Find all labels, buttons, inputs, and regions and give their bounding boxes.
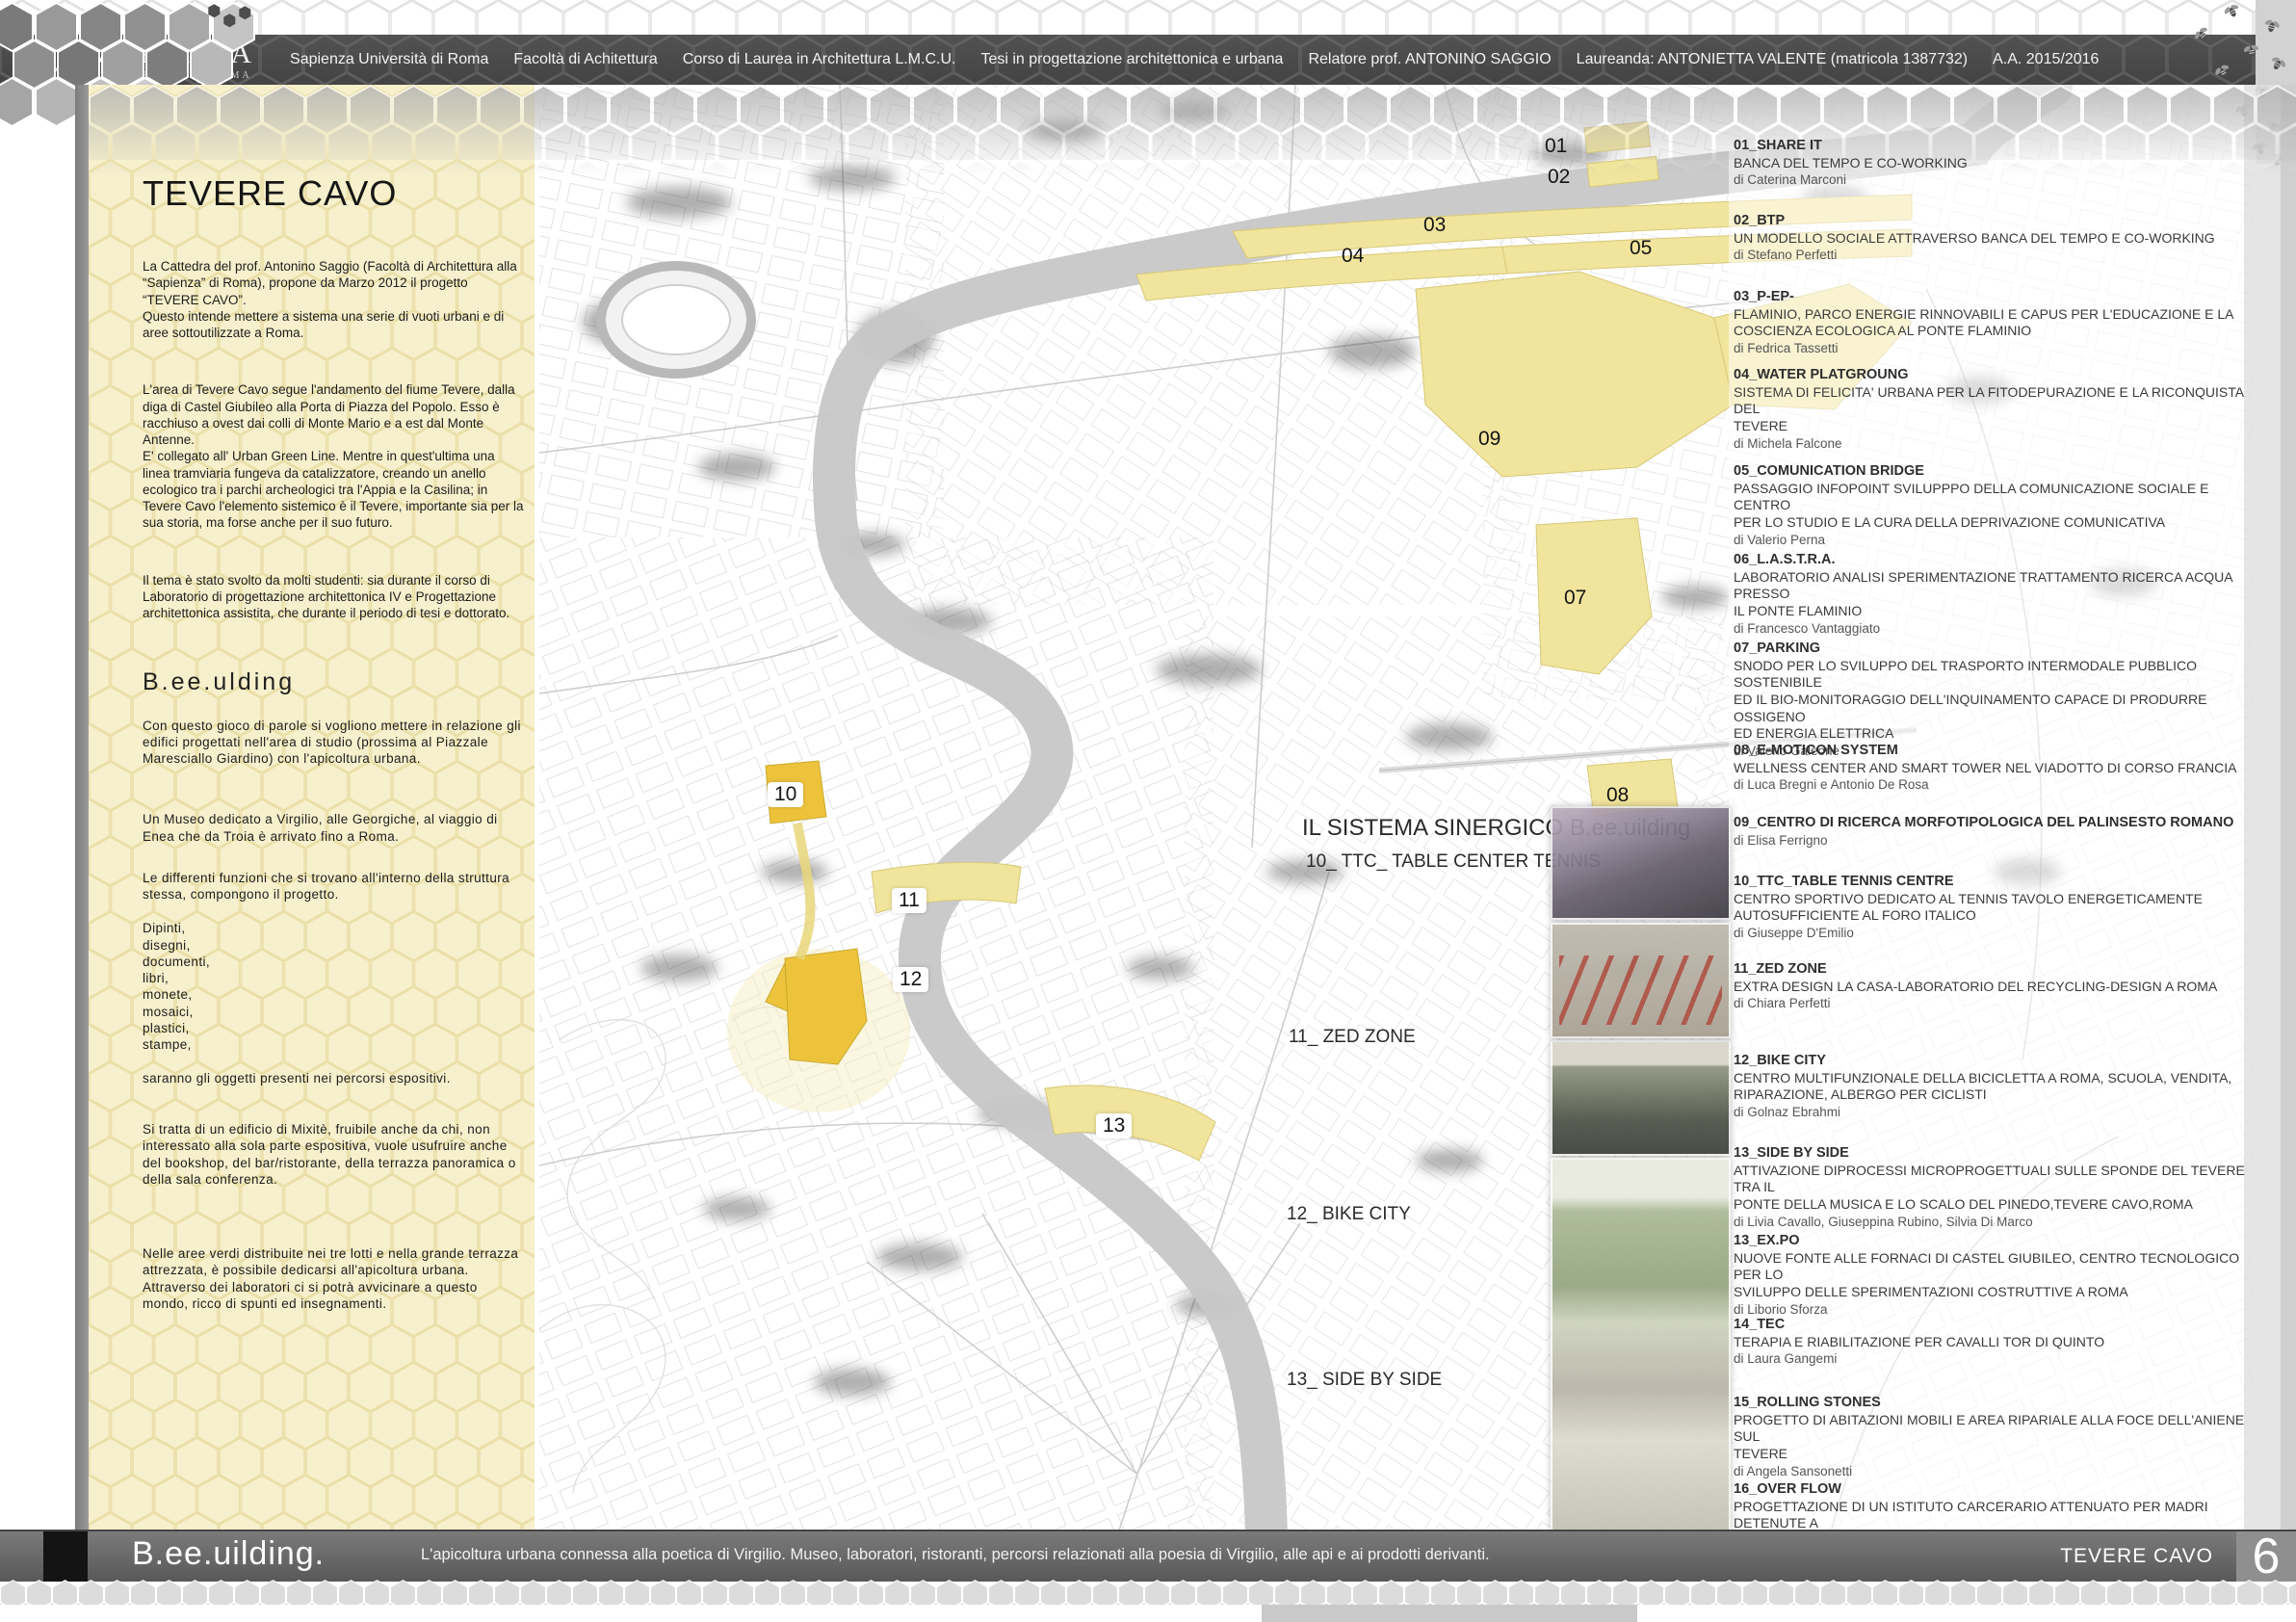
project-item: 13_EX.PO NUOVE FONTE ALLE FORNACI DI CAS… xyxy=(1734,1233,2258,1318)
project-author: di Stefano Perfetti xyxy=(1734,247,2258,264)
project-item: 06_L.A.S.T.R.A. LABORATORIO ANALISI SPER… xyxy=(1734,552,2258,637)
project-author: di Giuseppe D'Emilio xyxy=(1734,925,2258,942)
map-marker-12: 12 xyxy=(893,967,928,992)
footer-bar: B.ee.uilding. L'apicoltura urbana connes… xyxy=(0,1530,2296,1582)
project-code: 07_PARKING xyxy=(1734,641,2258,658)
caption-segment: Corso di Laurea in Architettura L.M.C.U. xyxy=(683,51,956,68)
footer-black-square xyxy=(43,1531,88,1582)
project-desc: FLAMINIO, PARCO ENERGIE RINNOVABILI E CA… xyxy=(1734,306,2258,340)
project-desc: PROGETTO DI ABITAZIONI MOBILI E AREA RIP… xyxy=(1734,1412,2258,1463)
project-code: 12_BIKE CITY xyxy=(1734,1053,2258,1070)
thumbnail-render-aerial-red xyxy=(1551,923,1731,1038)
map-marker-01: 01 xyxy=(1545,135,1567,158)
header-bar: SAPIENZA UNIVERSITÀ DI ROMA Sapienza Uni… xyxy=(0,35,2296,85)
project-code: 08_E-MOTICON SYSTEM xyxy=(1734,743,2258,760)
project-item: 13_SIDE BY SIDE ATTIVAZIONE DIPROCESSI M… xyxy=(1734,1145,2258,1230)
bottom-hex-strip xyxy=(0,1580,2296,1605)
project-item: 03_P-EP- FLAMINIO, PARCO ENERGIE RINNOVA… xyxy=(1734,289,2258,356)
project-code: 16_OVER FLOW xyxy=(1734,1481,2258,1499)
project-code: 15_ROLLING STONES xyxy=(1734,1395,2258,1412)
project-author: di Laura Gangemi xyxy=(1734,1350,2258,1368)
map-marker-03: 03 xyxy=(1423,214,1446,237)
project-code: 11_ZED ZONE xyxy=(1734,961,2258,979)
project-desc: EXTRA DESIGN LA CASA-LABORATORIO DEL REC… xyxy=(1734,979,2258,996)
header-caption: Sapienza Università di Roma Facoltà di A… xyxy=(290,51,2099,68)
thumbnail-render-green-section xyxy=(1551,1158,1731,1531)
project-desc: CENTRO MULTIFUNZIONALE DELLA BICICLETTA … xyxy=(1734,1070,2258,1104)
caption-segment: Relatore prof. ANTONINO SAGGIO xyxy=(1308,51,1551,68)
project-author: di Angela Sansonetti xyxy=(1734,1463,2258,1480)
map-marker-11: 11 xyxy=(892,888,926,913)
map-label-zed-zone: 11_ ZED ZONE xyxy=(1289,1027,1416,1048)
project-desc: ATTIVAZIONE DIPROCESSI MICROPROGETTUALI … xyxy=(1734,1163,2258,1214)
project-code: 09_CENTRO DI RICERCA MORFOTIPOLOGICA DEL… xyxy=(1734,815,2258,832)
project-author: di Elisa Ferrigno xyxy=(1734,832,2258,850)
project-code: 13_SIDE BY SIDE xyxy=(1734,1145,2258,1163)
project-item: 14_TEC TERAPIA E RIABILITAZIONE PER CAVA… xyxy=(1734,1317,2258,1368)
panel-edge-strip xyxy=(75,85,89,1536)
map-marker-07: 07 xyxy=(1564,587,1586,610)
map-marker-08: 08 xyxy=(1606,784,1629,807)
project-code: 02_BTP xyxy=(1734,213,2258,230)
project-desc: UN MODELLO SOCIALE ATTRAVERSO BANCA DEL … xyxy=(1734,230,2258,248)
project-author: di Chiara Perfetti xyxy=(1734,995,2258,1012)
project-desc: WELLNESS CENTER AND SMART TOWER NEL VIAD… xyxy=(1734,760,2258,777)
map-label-bike-city: 12_ BIKE CITY xyxy=(1287,1204,1411,1225)
map-label-side-by-side: 13_ SIDE BY SIDE xyxy=(1287,1370,1442,1391)
caption-segment: Sapienza Università di Roma xyxy=(290,51,488,68)
map-marker-13: 13 xyxy=(1096,1113,1132,1138)
caption-segment: Facoltà di Achitettura xyxy=(513,51,657,68)
project-code: 13_EX.PO xyxy=(1734,1233,2258,1250)
project-item: 05_COMUNICATION BRIDGE PASSAGGIO INFOPOI… xyxy=(1734,463,2258,548)
project-item: 11_ZED ZONE EXTRA DESIGN LA CASA-LABORAT… xyxy=(1734,961,2258,1012)
project-code: 03_P-EP- xyxy=(1734,289,2258,306)
project-item: 15_ROLLING STONES PROGETTO DI ABITAZIONI… xyxy=(1734,1395,2258,1479)
project-item: 04_WATER PLATGROUNG SISTEMA DI FELICITA'… xyxy=(1734,367,2258,452)
project-code: 05_COMUNICATION BRIDGE xyxy=(1734,463,2258,481)
project-code: 06_L.A.S.T.R.A. xyxy=(1734,552,2258,569)
project-code: 04_WATER PLATGROUNG xyxy=(1734,367,2258,384)
project-author: di Livia Cavallo, Giuseppina Rubino, Sil… xyxy=(1734,1214,2258,1231)
footer-brand: B.ee.uilding. xyxy=(132,1535,325,1573)
top-margin-strip xyxy=(0,0,2296,35)
project-desc: BANCA DEL TEMPO E CO-WORKING xyxy=(1734,155,2258,172)
thesis-board: SAPIENZA UNIVERSITÀ DI ROMA Sapienza Uni… xyxy=(0,0,2296,1622)
project-author: di Michela Falcone xyxy=(1734,435,2258,453)
map-marker-05: 05 xyxy=(1630,237,1652,260)
project-item: 01_SHARE IT BANCA DEL TEMPO E CO-WORKING… xyxy=(1734,138,2258,189)
page-number: 6 xyxy=(2253,1531,2281,1582)
hex-outline-band xyxy=(0,0,2296,35)
project-code: 14_TEC xyxy=(1734,1317,2258,1334)
thumbnail-render-museum xyxy=(1551,806,1731,920)
project-author: di Caterina Marconi xyxy=(1734,171,2258,189)
project-desc: SNODO PER LO SVILUPPO DEL TRASPORTO INTE… xyxy=(1734,658,2258,743)
project-item: 08_E-MOTICON SYSTEM WELLNESS CENTER AND … xyxy=(1734,743,2258,794)
map-marker-02: 02 xyxy=(1548,166,1570,189)
project-author: di Francesco Vantaggiato xyxy=(1734,620,2258,638)
map-marker-04: 04 xyxy=(1342,245,1364,268)
caption-segment: A.A. 2015/2016 xyxy=(1993,51,2099,68)
project-author: di Valerio Perna xyxy=(1734,532,2258,549)
project-author: di Luca Bregni e Antonio De Rosa xyxy=(1734,776,2258,794)
page-number-badge: 6 xyxy=(2236,1531,2296,1582)
project-desc: SISTEMA DI FELICITA' URBANA PER LA FITOD… xyxy=(1734,384,2258,435)
project-desc: TERAPIA E RIABILITAZIONE PER CAVALLI TOR… xyxy=(1734,1334,2258,1351)
project-item: 10_TTC_TABLE TENNIS CENTRE CENTRO SPORTI… xyxy=(1734,874,2258,941)
project-item: 07_PARKING SNODO PER LO SVILUPPO DEL TRA… xyxy=(1734,641,2258,759)
project-desc: PASSAGGIO INFOPOINT SVILUPPPO DELLA COMU… xyxy=(1734,481,2258,532)
project-author: di Golnaz Ebrahmi xyxy=(1734,1104,2258,1121)
project-item: 12_BIKE CITY CENTRO MULTIFUNZIONALE DELL… xyxy=(1734,1053,2258,1120)
project-item: 09_CENTRO DI RICERCA MORFOTIPOLOGICA DEL… xyxy=(1734,815,2258,849)
caption-segment: Tesi in progettazione architettonica e u… xyxy=(980,51,1283,68)
project-desc: CENTRO SPORTIVO DEDICATO AL TENNIS TAVOL… xyxy=(1734,891,2258,925)
project-code: 10_TTC_TABLE TENNIS CENTRE xyxy=(1734,874,2258,891)
project-author: di Liborio Sforza xyxy=(1734,1301,2258,1319)
project-author: di Fedrica Tassetti xyxy=(1734,340,2258,357)
caption-segment: Laureanda: ANTONIETTA VALENTE (matricola… xyxy=(1577,51,1968,68)
project-desc: NUOVE FONTE ALLE FORNACI DI CASTEL GIUBI… xyxy=(1734,1250,2258,1301)
map-marker-10: 10 xyxy=(768,782,803,807)
footer-tagline: L'apicoltura urbana connessa alla poetic… xyxy=(421,1546,1490,1564)
footer-section-label: TEVERE CAVO xyxy=(2060,1545,2213,1568)
project-desc: LABORATORIO ANALISI SPERIMENTAZIONE TRAT… xyxy=(1734,569,2258,620)
project-item: 02_BTP UN MODELLO SOCIALE ATTRAVERSO BAN… xyxy=(1734,213,2258,264)
thumbnail-render-park-canopy xyxy=(1551,1040,1731,1156)
map-marker-09: 09 xyxy=(1478,428,1500,451)
project-code: 01_SHARE IT xyxy=(1734,138,2258,155)
bottom-center-bar xyxy=(1262,1605,1637,1622)
